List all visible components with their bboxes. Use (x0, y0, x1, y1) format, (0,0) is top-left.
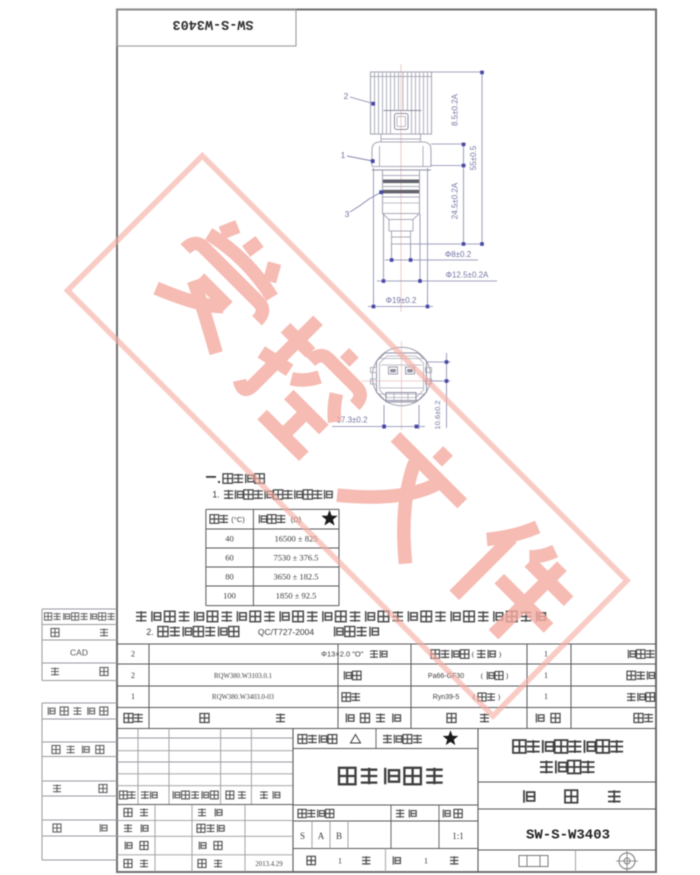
svg-text:QC/T727-2004: QC/T727-2004 (258, 627, 314, 637)
svg-text:1850 ± 92.5: 1850 ± 92.5 (276, 591, 317, 601)
svg-text:1: 1 (544, 671, 548, 680)
svg-text:24.5±0.2A: 24.5±0.2A (451, 182, 460, 219)
svg-text:2: 2 (131, 671, 135, 680)
svg-text:Φ12.5±0.2A: Φ12.5±0.2A (446, 271, 489, 280)
svg-text:60: 60 (225, 553, 234, 563)
svg-text:1: 1 (338, 857, 342, 866)
svg-text:Φ8±0.2: Φ8±0.2 (445, 250, 472, 259)
svg-text:SW-S-W3403: SW-S-W3403 (526, 828, 610, 844)
svg-text:1: 1 (131, 692, 135, 701)
svg-text:1: 1 (341, 150, 346, 160)
svg-text:10.6±0.2: 10.6±0.2 (433, 400, 442, 429)
svg-text:(°C): (°C) (231, 515, 245, 524)
svg-text:40: 40 (225, 534, 234, 544)
svg-text:A: A (318, 831, 325, 841)
svg-text:2: 2 (131, 650, 135, 659)
svg-text:RQW380.W3103.0.1: RQW380.W3103.0.1 (214, 673, 272, 680)
svg-text:2.: 2. (146, 627, 154, 637)
svg-text:Ryn39-5: Ryn39-5 (433, 694, 460, 701)
svg-text:1:1: 1:1 (452, 831, 464, 841)
svg-text:S: S (300, 831, 305, 841)
svg-text:Φ13×2.0 "O": Φ13×2.0 "O" (321, 650, 364, 659)
svg-text:55±0.5: 55±0.5 (469, 145, 478, 170)
svg-text:100: 100 (223, 591, 236, 601)
svg-text:3650 ± 182.5: 3650 ± 182.5 (273, 572, 318, 582)
svg-text:1: 1 (544, 692, 548, 701)
svg-text:RQW380.W3403.0-03: RQW380.W3403.0-03 (212, 694, 275, 701)
svg-text:CAD: CAD (70, 648, 88, 658)
svg-text:7530 ± 376.5: 7530 ± 376.5 (273, 553, 318, 563)
svg-text:80: 80 (225, 572, 234, 582)
svg-text:Φ19±0.2: Φ19±0.2 (386, 296, 417, 305)
svg-text:B: B (336, 831, 342, 841)
svg-text:1.: 1. (212, 490, 220, 500)
svg-text:2013.4.29: 2013.4.29 (255, 861, 283, 868)
svg-text:1: 1 (424, 857, 428, 866)
svg-text:3: 3 (345, 209, 350, 219)
svg-text:SW-S-W3403: SW-S-W3403 (172, 16, 253, 31)
svg-text:8.5±0.2A: 8.5±0.2A (451, 93, 460, 126)
svg-text:2: 2 (344, 91, 349, 101)
